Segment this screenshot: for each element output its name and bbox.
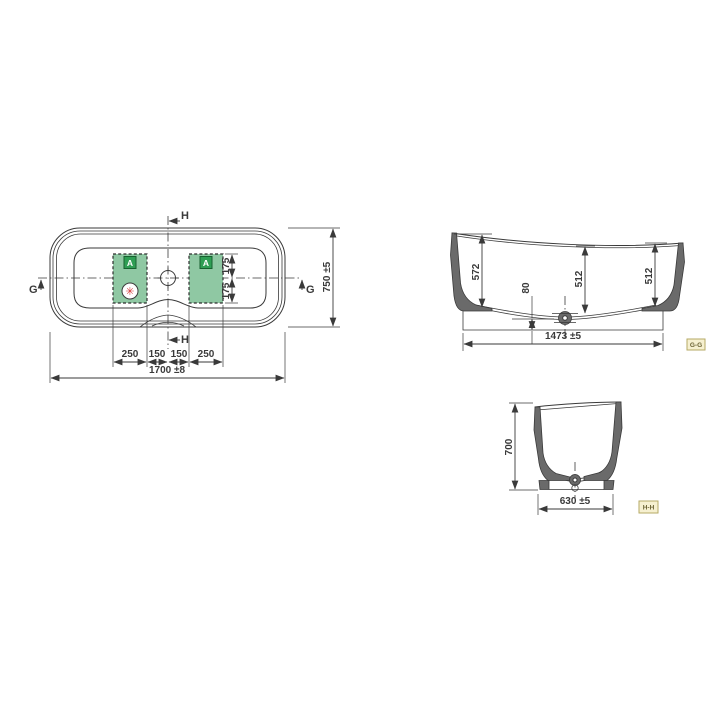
dim-offset-top: 175 (221, 257, 232, 274)
dim-gg-height-left: 572 (471, 263, 482, 280)
dim-gg-height-mid: 512 (574, 270, 585, 287)
section-label-hh: H-H (643, 505, 655, 512)
hh-wall-right (584, 402, 622, 481)
section-view-gg: 572 512 512 80 1473 ±5 G-G (451, 233, 706, 351)
hh-wall-left (534, 407, 570, 481)
dim-gg-base-length: 1473 ±5 (545, 331, 582, 342)
section-marker-g-right: G (306, 284, 315, 296)
asterisk-icon: ✳ (125, 285, 134, 298)
dim-seg-left-inner: 150 (149, 349, 166, 360)
hh-rim-far-edge (537, 404, 618, 411)
dim-hh-height: 700 (504, 438, 515, 455)
drawing-canvas: A A ✳ H H G G 750 ±5 250 (0, 0, 720, 720)
dim-gg-height-right: 512 (644, 267, 655, 284)
section-marker-h-top: H (181, 210, 189, 222)
hh-foot-right (604, 481, 614, 490)
dim-overall-length: 1700 ±8 (149, 365, 186, 376)
hh-foot-left (539, 481, 549, 490)
gg-rim-line-outer (452, 233, 683, 245)
section-marker-g-left: G (29, 284, 38, 296)
zone-a-label-right: A (203, 258, 209, 268)
technical-drawing: A A ✳ H H G G 750 ±5 250 (0, 0, 720, 720)
tub-rim-outer (50, 228, 285, 327)
zone-a-label-left: A (127, 258, 133, 268)
dim-seg-right-inner: 150 (171, 349, 188, 360)
tub-rim-mid (53, 231, 282, 324)
dim-seg-left-outer: 250 (122, 349, 139, 360)
section-label-gg: G-G (690, 342, 702, 349)
dim-hh-base-width: 630 ±5 (560, 496, 591, 507)
dim-seg-right-outer: 250 (198, 349, 215, 360)
dim-overall-width: 750 ±5 (322, 261, 333, 292)
dim-offset-bottom: 175 (221, 282, 232, 299)
hh-drain-hole (573, 478, 577, 482)
gg-drain-hole (563, 316, 568, 321)
dim-gg-floor-offset: 80 (521, 282, 532, 294)
section-marker-h-bottom: H (181, 334, 189, 346)
plan-view: A A ✳ H H G G 750 ±5 250 (29, 210, 340, 383)
section-view-hh: 700 630 ±5 H-H (504, 402, 658, 515)
